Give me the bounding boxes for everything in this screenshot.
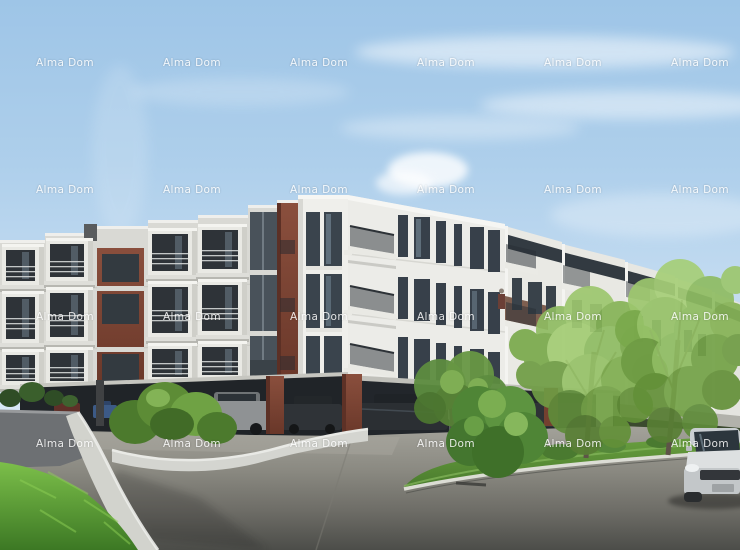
- rust-accent-band: [277, 203, 298, 388]
- balcony-box: [44, 238, 95, 288]
- balcony-box: [146, 228, 199, 282]
- scene-rendering: [0, 0, 740, 550]
- balcony-box: [44, 287, 95, 348]
- property-rendering: Alma DomAlma DomAlma DomAlma DomAlma Dom…: [0, 0, 740, 550]
- balcony-box: [196, 279, 249, 342]
- glass-recess-bay: [250, 212, 277, 386]
- rust-recess-bay: [97, 248, 144, 388]
- corner-pillar: [342, 374, 362, 437]
- garage-pillar: [96, 380, 104, 426]
- garage-pillar-rust: [266, 376, 284, 434]
- corner-tower: [298, 195, 352, 382]
- balcony-box: [0, 291, 46, 350]
- balcony-box: [196, 224, 249, 280]
- balcony-box: [146, 281, 199, 344]
- corner-balconies: [348, 226, 396, 378]
- balcony-box: [0, 244, 46, 292]
